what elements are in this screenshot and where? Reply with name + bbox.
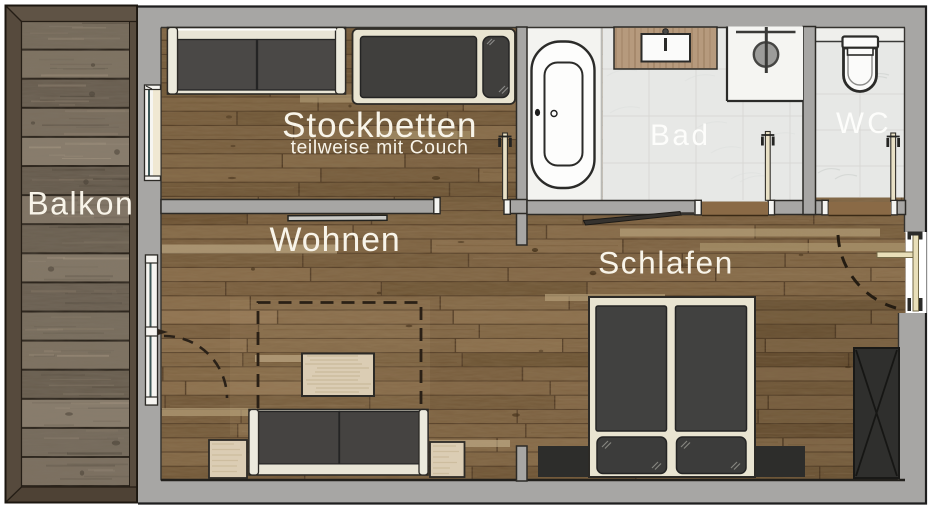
svg-text:Bad: Bad: [650, 119, 710, 152]
svg-text:teilweise mit Couch: teilweise mit Couch: [291, 138, 469, 159]
svg-text:Schlafen: Schlafen: [598, 245, 734, 281]
svg-text:Balkon: Balkon: [27, 185, 134, 221]
svg-text:WC: WC: [836, 107, 892, 140]
svg-text:Wohnen: Wohnen: [269, 221, 400, 259]
